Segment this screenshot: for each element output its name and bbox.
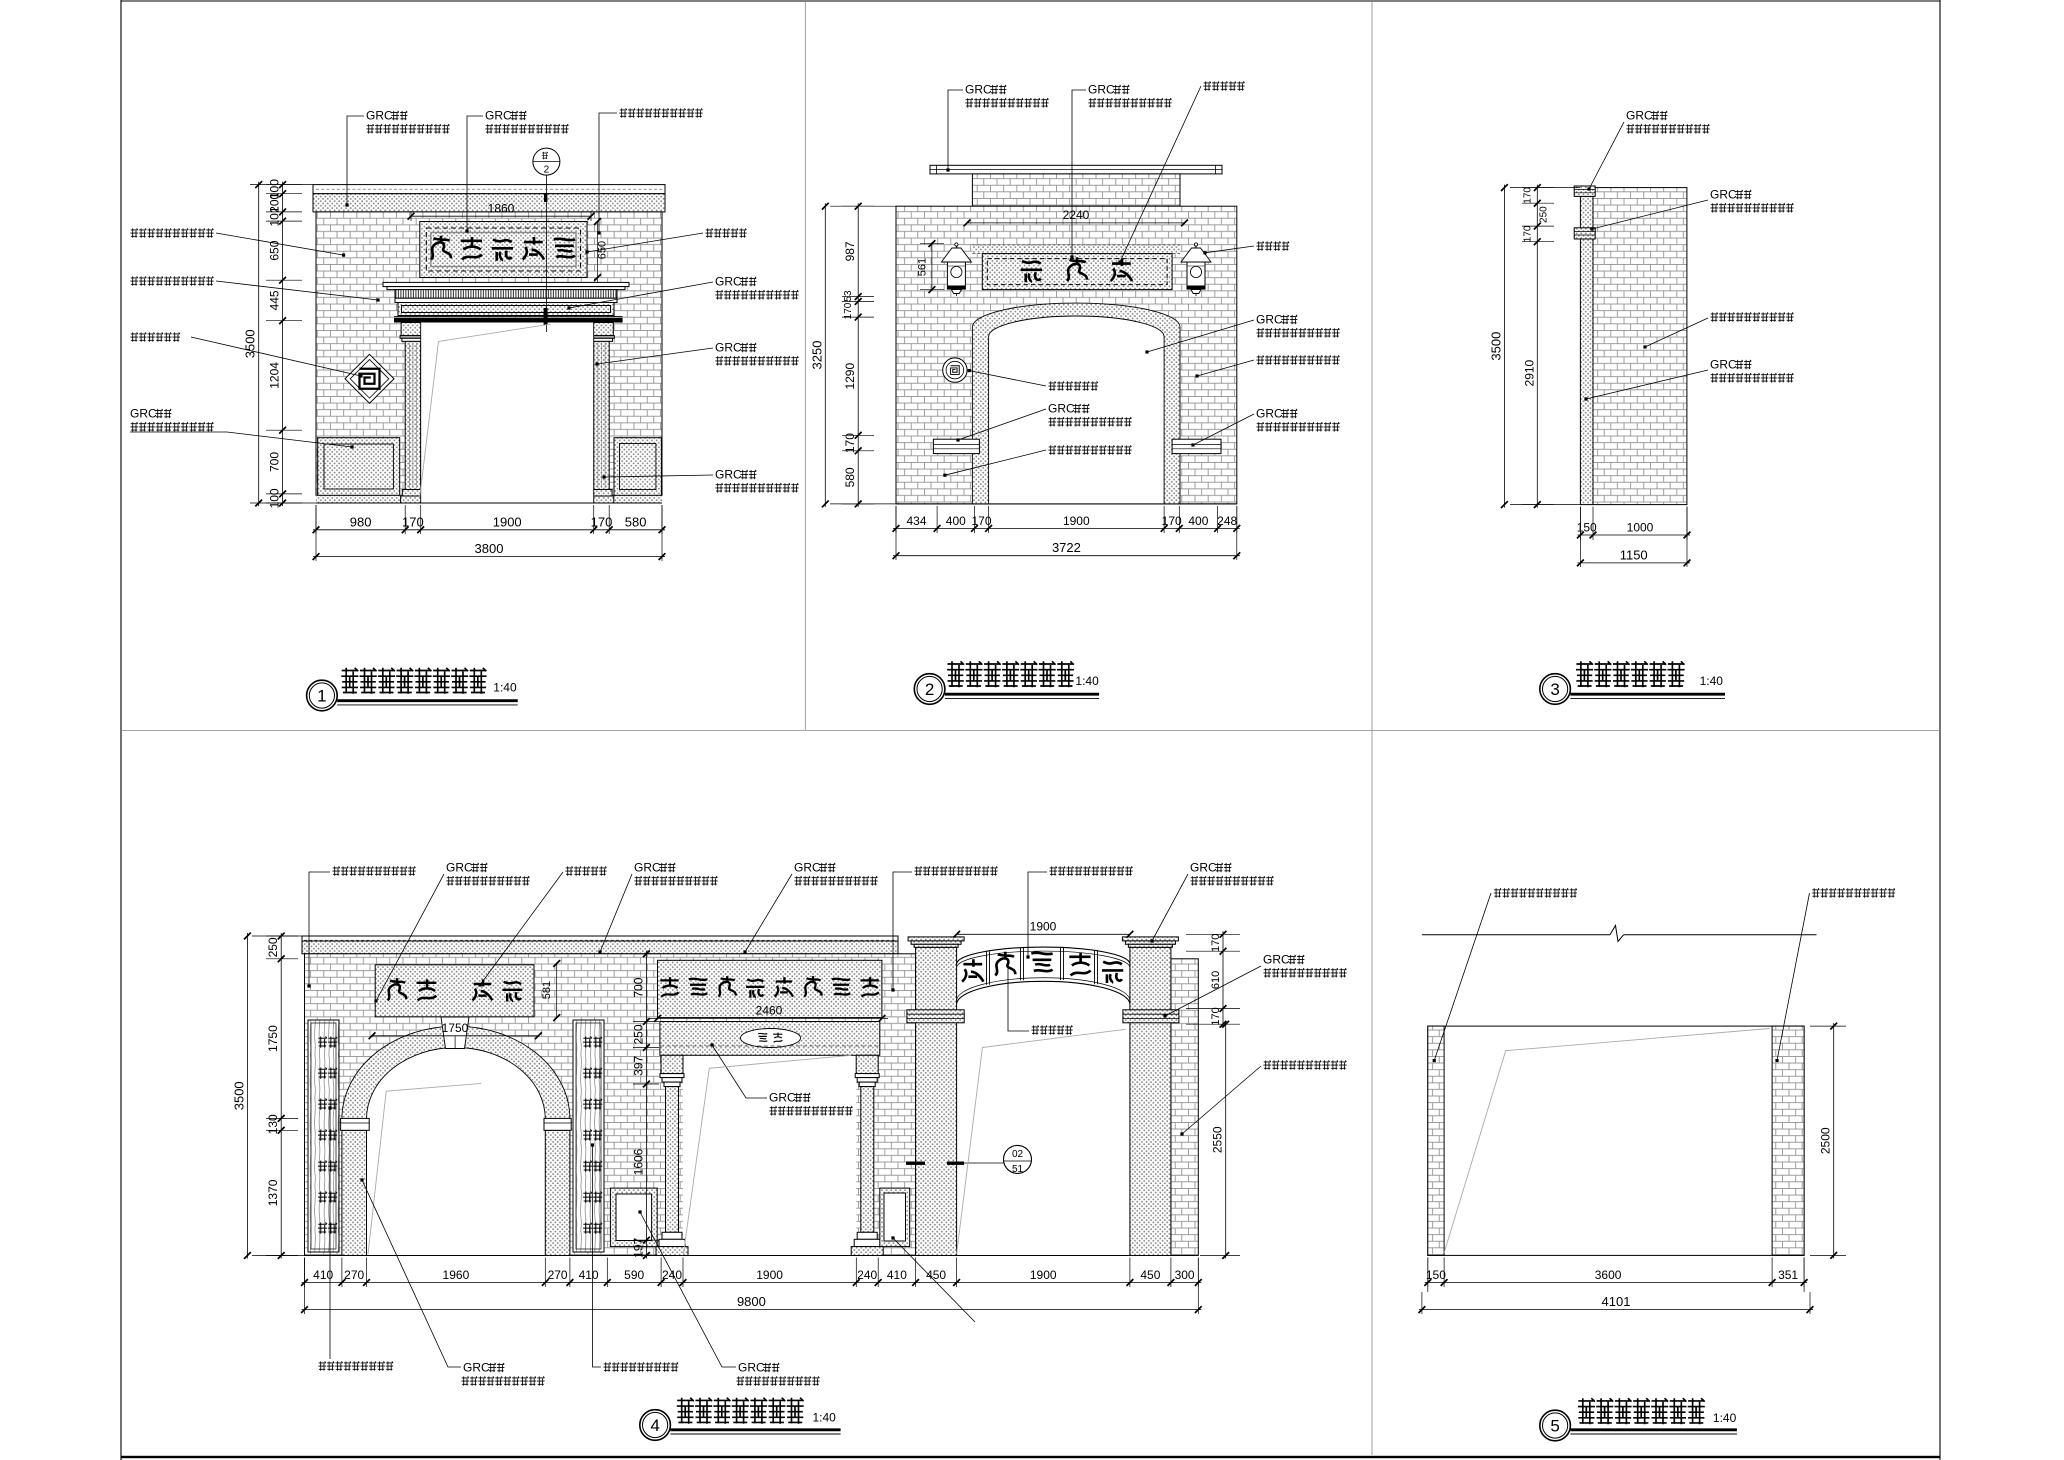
svg-text:1290: 1290	[843, 363, 857, 390]
svg-text:580: 580	[843, 467, 857, 487]
svg-text:610: 610	[1210, 971, 1222, 989]
svg-text:400: 400	[946, 514, 966, 528]
svg-text:GRC: GRC	[1710, 358, 1737, 372]
svg-text:1370: 1370	[266, 1179, 280, 1206]
svg-text:1900: 1900	[493, 514, 522, 529]
svg-text:170: 170	[1162, 514, 1182, 528]
svg-text:1900: 1900	[1030, 1268, 1057, 1282]
svg-text:450: 450	[926, 1268, 946, 1282]
svg-text:130: 130	[266, 1114, 280, 1134]
svg-text:410: 410	[887, 1268, 907, 1282]
svg-text:2460: 2460	[756, 1004, 783, 1018]
svg-text:700: 700	[631, 977, 645, 997]
svg-text:250: 250	[631, 1024, 645, 1044]
svg-text:4: 4	[650, 1416, 659, 1435]
svg-text:2240: 2240	[1063, 208, 1090, 222]
svg-text:4101: 4101	[1602, 1294, 1631, 1309]
svg-text:3250: 3250	[809, 341, 824, 370]
svg-text:1:40: 1:40	[813, 1410, 837, 1424]
svg-text:2500: 2500	[1819, 1127, 1833, 1154]
svg-text:GRC: GRC	[1256, 407, 1283, 421]
svg-text:1204: 1204	[268, 362, 282, 389]
svg-text:1: 1	[317, 687, 326, 706]
svg-text:02: 02	[1012, 1149, 1024, 1160]
svg-text:150: 150	[1577, 521, 1597, 535]
svg-text:250: 250	[1539, 206, 1550, 223]
svg-text:3722: 3722	[1052, 540, 1081, 555]
svg-text:170: 170	[843, 302, 854, 319]
svg-text:GRC: GRC	[1088, 83, 1115, 97]
svg-text:445: 445	[268, 290, 282, 310]
svg-text:561: 561	[917, 258, 929, 276]
svg-text:580: 580	[625, 514, 647, 529]
svg-text:GRC: GRC	[485, 109, 512, 123]
svg-text:GRC: GRC	[1048, 402, 1075, 416]
svg-text:53: 53	[843, 290, 854, 302]
svg-text:GRC: GRC	[965, 83, 992, 97]
svg-text:170: 170	[1210, 934, 1222, 952]
svg-text:1750: 1750	[442, 1021, 469, 1035]
svg-text:GRC: GRC	[715, 275, 742, 289]
svg-text:3: 3	[1550, 680, 1559, 699]
svg-text:987: 987	[843, 241, 857, 261]
svg-text:GRC: GRC	[1256, 313, 1283, 327]
svg-text:GRC: GRC	[463, 1361, 490, 1375]
svg-text:GRC: GRC	[1710, 188, 1737, 202]
svg-text:2: 2	[544, 165, 550, 176]
svg-text:3500: 3500	[243, 329, 258, 358]
svg-text:397: 397	[631, 1055, 645, 1075]
svg-text:51: 51	[1012, 1164, 1024, 1175]
svg-text:1900: 1900	[756, 1268, 783, 1282]
svg-text:GRC: GRC	[366, 109, 393, 123]
svg-text:GRC: GRC	[1263, 953, 1290, 967]
svg-text:248: 248	[1217, 514, 1237, 528]
svg-text:410: 410	[313, 1268, 333, 1282]
svg-text:1:40: 1:40	[1713, 1411, 1737, 1425]
svg-text:1960: 1960	[443, 1268, 470, 1282]
svg-text:GRC: GRC	[446, 861, 473, 875]
svg-text:101: 101	[268, 206, 282, 226]
svg-text:581: 581	[541, 981, 553, 999]
svg-text:3500: 3500	[231, 1081, 246, 1110]
svg-text:240: 240	[857, 1268, 877, 1282]
svg-text:9800: 9800	[737, 1294, 766, 1309]
svg-text:GRC: GRC	[794, 861, 821, 875]
svg-text:100: 100	[268, 488, 282, 508]
svg-text:5: 5	[1550, 1417, 1559, 1436]
svg-text:351: 351	[1778, 1268, 1798, 1282]
svg-text:GRC: GRC	[1190, 861, 1217, 875]
svg-text:1:40: 1:40	[1075, 674, 1099, 688]
svg-text:GRC: GRC	[1626, 109, 1653, 123]
svg-text:170: 170	[591, 514, 613, 529]
svg-text:1750: 1750	[266, 1025, 280, 1052]
svg-text:150: 150	[1426, 1268, 1446, 1282]
svg-text:590: 590	[624, 1268, 644, 1282]
svg-text:GRC: GRC	[769, 1091, 796, 1105]
svg-text:300: 300	[1175, 1268, 1195, 1282]
svg-text:2550: 2550	[1211, 1126, 1225, 1153]
svg-text:3800: 3800	[475, 541, 504, 556]
svg-text:170: 170	[843, 433, 857, 453]
svg-text:3500: 3500	[1488, 332, 1503, 361]
svg-text:1:40: 1:40	[493, 681, 517, 695]
svg-text:170: 170	[971, 514, 991, 528]
svg-text:170: 170	[402, 514, 424, 529]
svg-text:GRC: GRC	[715, 341, 742, 355]
svg-text:3600: 3600	[1595, 1268, 1622, 1282]
svg-text:1150: 1150	[1620, 547, 1648, 562]
svg-text:250: 250	[266, 937, 280, 957]
svg-text:2: 2	[925, 680, 934, 699]
svg-text:434: 434	[906, 514, 926, 528]
svg-text:2910: 2910	[1522, 359, 1536, 386]
svg-text:170: 170	[1210, 1007, 1222, 1025]
svg-text:700: 700	[268, 452, 282, 472]
svg-text:980: 980	[350, 514, 372, 529]
svg-text:270: 270	[548, 1268, 568, 1282]
svg-text:GRC: GRC	[130, 407, 157, 421]
svg-text:1606: 1606	[631, 1148, 645, 1175]
svg-text:1860: 1860	[488, 202, 515, 216]
svg-text:1900: 1900	[1030, 920, 1057, 934]
svg-text:410: 410	[579, 1268, 599, 1282]
svg-text:1900: 1900	[1063, 514, 1090, 528]
svg-text:1000: 1000	[1627, 521, 1654, 535]
svg-text:GRC: GRC	[634, 861, 661, 875]
svg-text:GRC: GRC	[738, 1361, 765, 1375]
svg-text:170: 170	[1523, 225, 1534, 242]
svg-text:197: 197	[631, 1237, 645, 1257]
svg-text:1:40: 1:40	[1700, 674, 1724, 688]
svg-text:GRC: GRC	[715, 468, 742, 482]
svg-text:450: 450	[1140, 1268, 1160, 1282]
svg-text:240: 240	[662, 1268, 682, 1282]
svg-text:270: 270	[344, 1268, 364, 1282]
svg-text:400: 400	[1188, 514, 1208, 528]
svg-text:170: 170	[1523, 187, 1534, 204]
